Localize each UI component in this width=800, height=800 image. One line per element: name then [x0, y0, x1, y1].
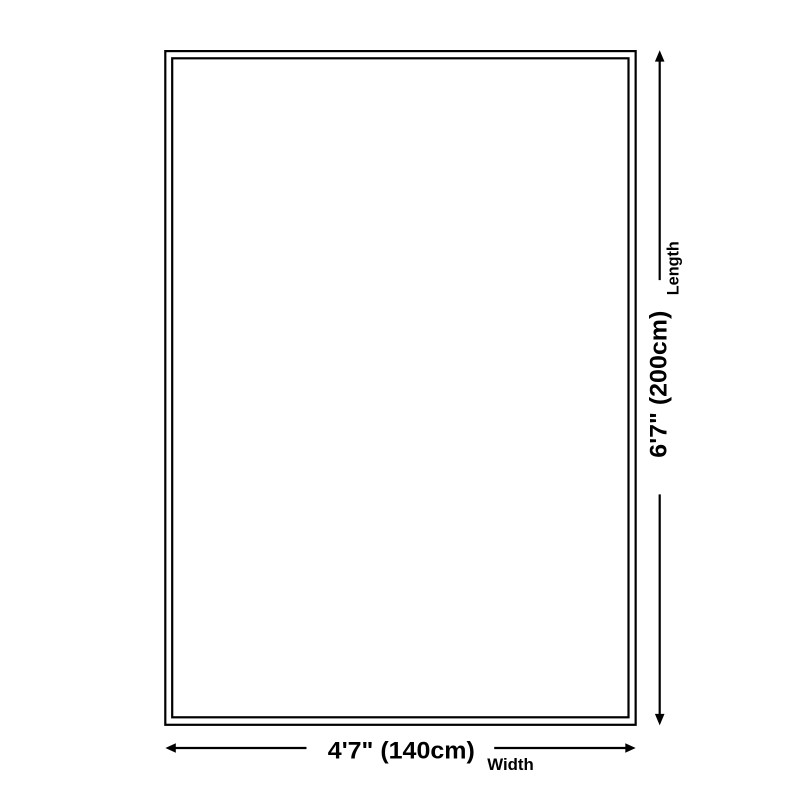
svg-text:Length: Length — [664, 241, 682, 295]
svg-text:4'7" (140cm): 4'7" (140cm) — [328, 738, 475, 765]
svg-text:Width: Width — [487, 756, 534, 774]
svg-text:6'7" (200cm): 6'7" (200cm) — [646, 311, 673, 458]
